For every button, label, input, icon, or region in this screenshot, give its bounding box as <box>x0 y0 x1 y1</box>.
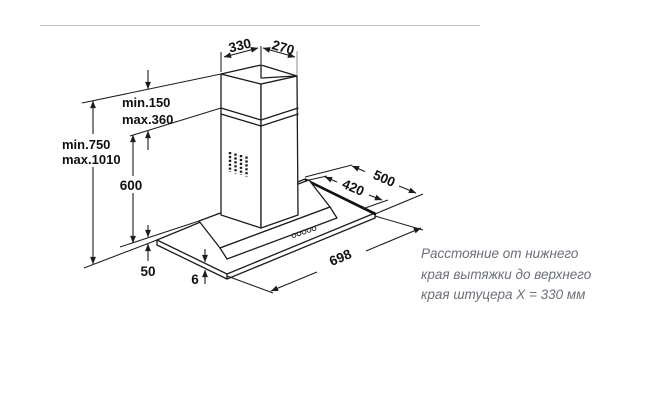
dim-line-500-right <box>399 186 416 193</box>
label-body-height: 50 <box>140 264 155 279</box>
label-height-min: min.750 <box>62 137 110 152</box>
label-chimney-max: max.360 <box>122 112 173 127</box>
dim-line-420-right <box>369 195 382 200</box>
note-line-1: Расстояние от нижнего <box>421 244 641 265</box>
dim-line-500-left <box>352 166 365 172</box>
label-chimney-min: min.150 <box>122 95 170 110</box>
spigot-distance-note: Расстояние от нижнего края вытяжки до ве… <box>421 244 641 306</box>
width-ext-left <box>227 276 273 293</box>
width-ext-right <box>375 216 423 230</box>
glass-depth-ext-front <box>375 194 423 214</box>
dim-line-698-left <box>271 272 317 291</box>
glass-depth-ext-back <box>305 165 352 177</box>
note-line-3: края штуцера X = 330 мм <box>421 285 641 306</box>
chimney-right-face <box>261 76 298 228</box>
hood-dimension-diagram: 330 270 min.150 max.360 min.750 max.1010… <box>0 0 650 400</box>
body-depth-ext-back <box>309 176 327 180</box>
chimney <box>221 65 298 228</box>
label-hood-width: 698 <box>327 246 354 269</box>
chimney-left-face <box>221 74 261 228</box>
label-glass-thickness: 6 <box>191 272 199 287</box>
label-body-depth: 420 <box>340 176 367 199</box>
label-lower-height: 600 <box>120 178 143 193</box>
note-line-2: края вытяжки до верхнего <box>421 265 641 286</box>
label-height-max: max.1010 <box>62 152 121 167</box>
label-duct-width: 330 <box>227 36 252 56</box>
label-glass-depth: 500 <box>371 167 398 190</box>
label-duct-depth: 270 <box>270 37 296 58</box>
dim-line-698-right <box>366 228 421 251</box>
dim-line-420-left <box>325 177 337 182</box>
hood-dimension-page: 330 270 min.150 max.360 min.750 max.1010… <box>0 0 650 400</box>
